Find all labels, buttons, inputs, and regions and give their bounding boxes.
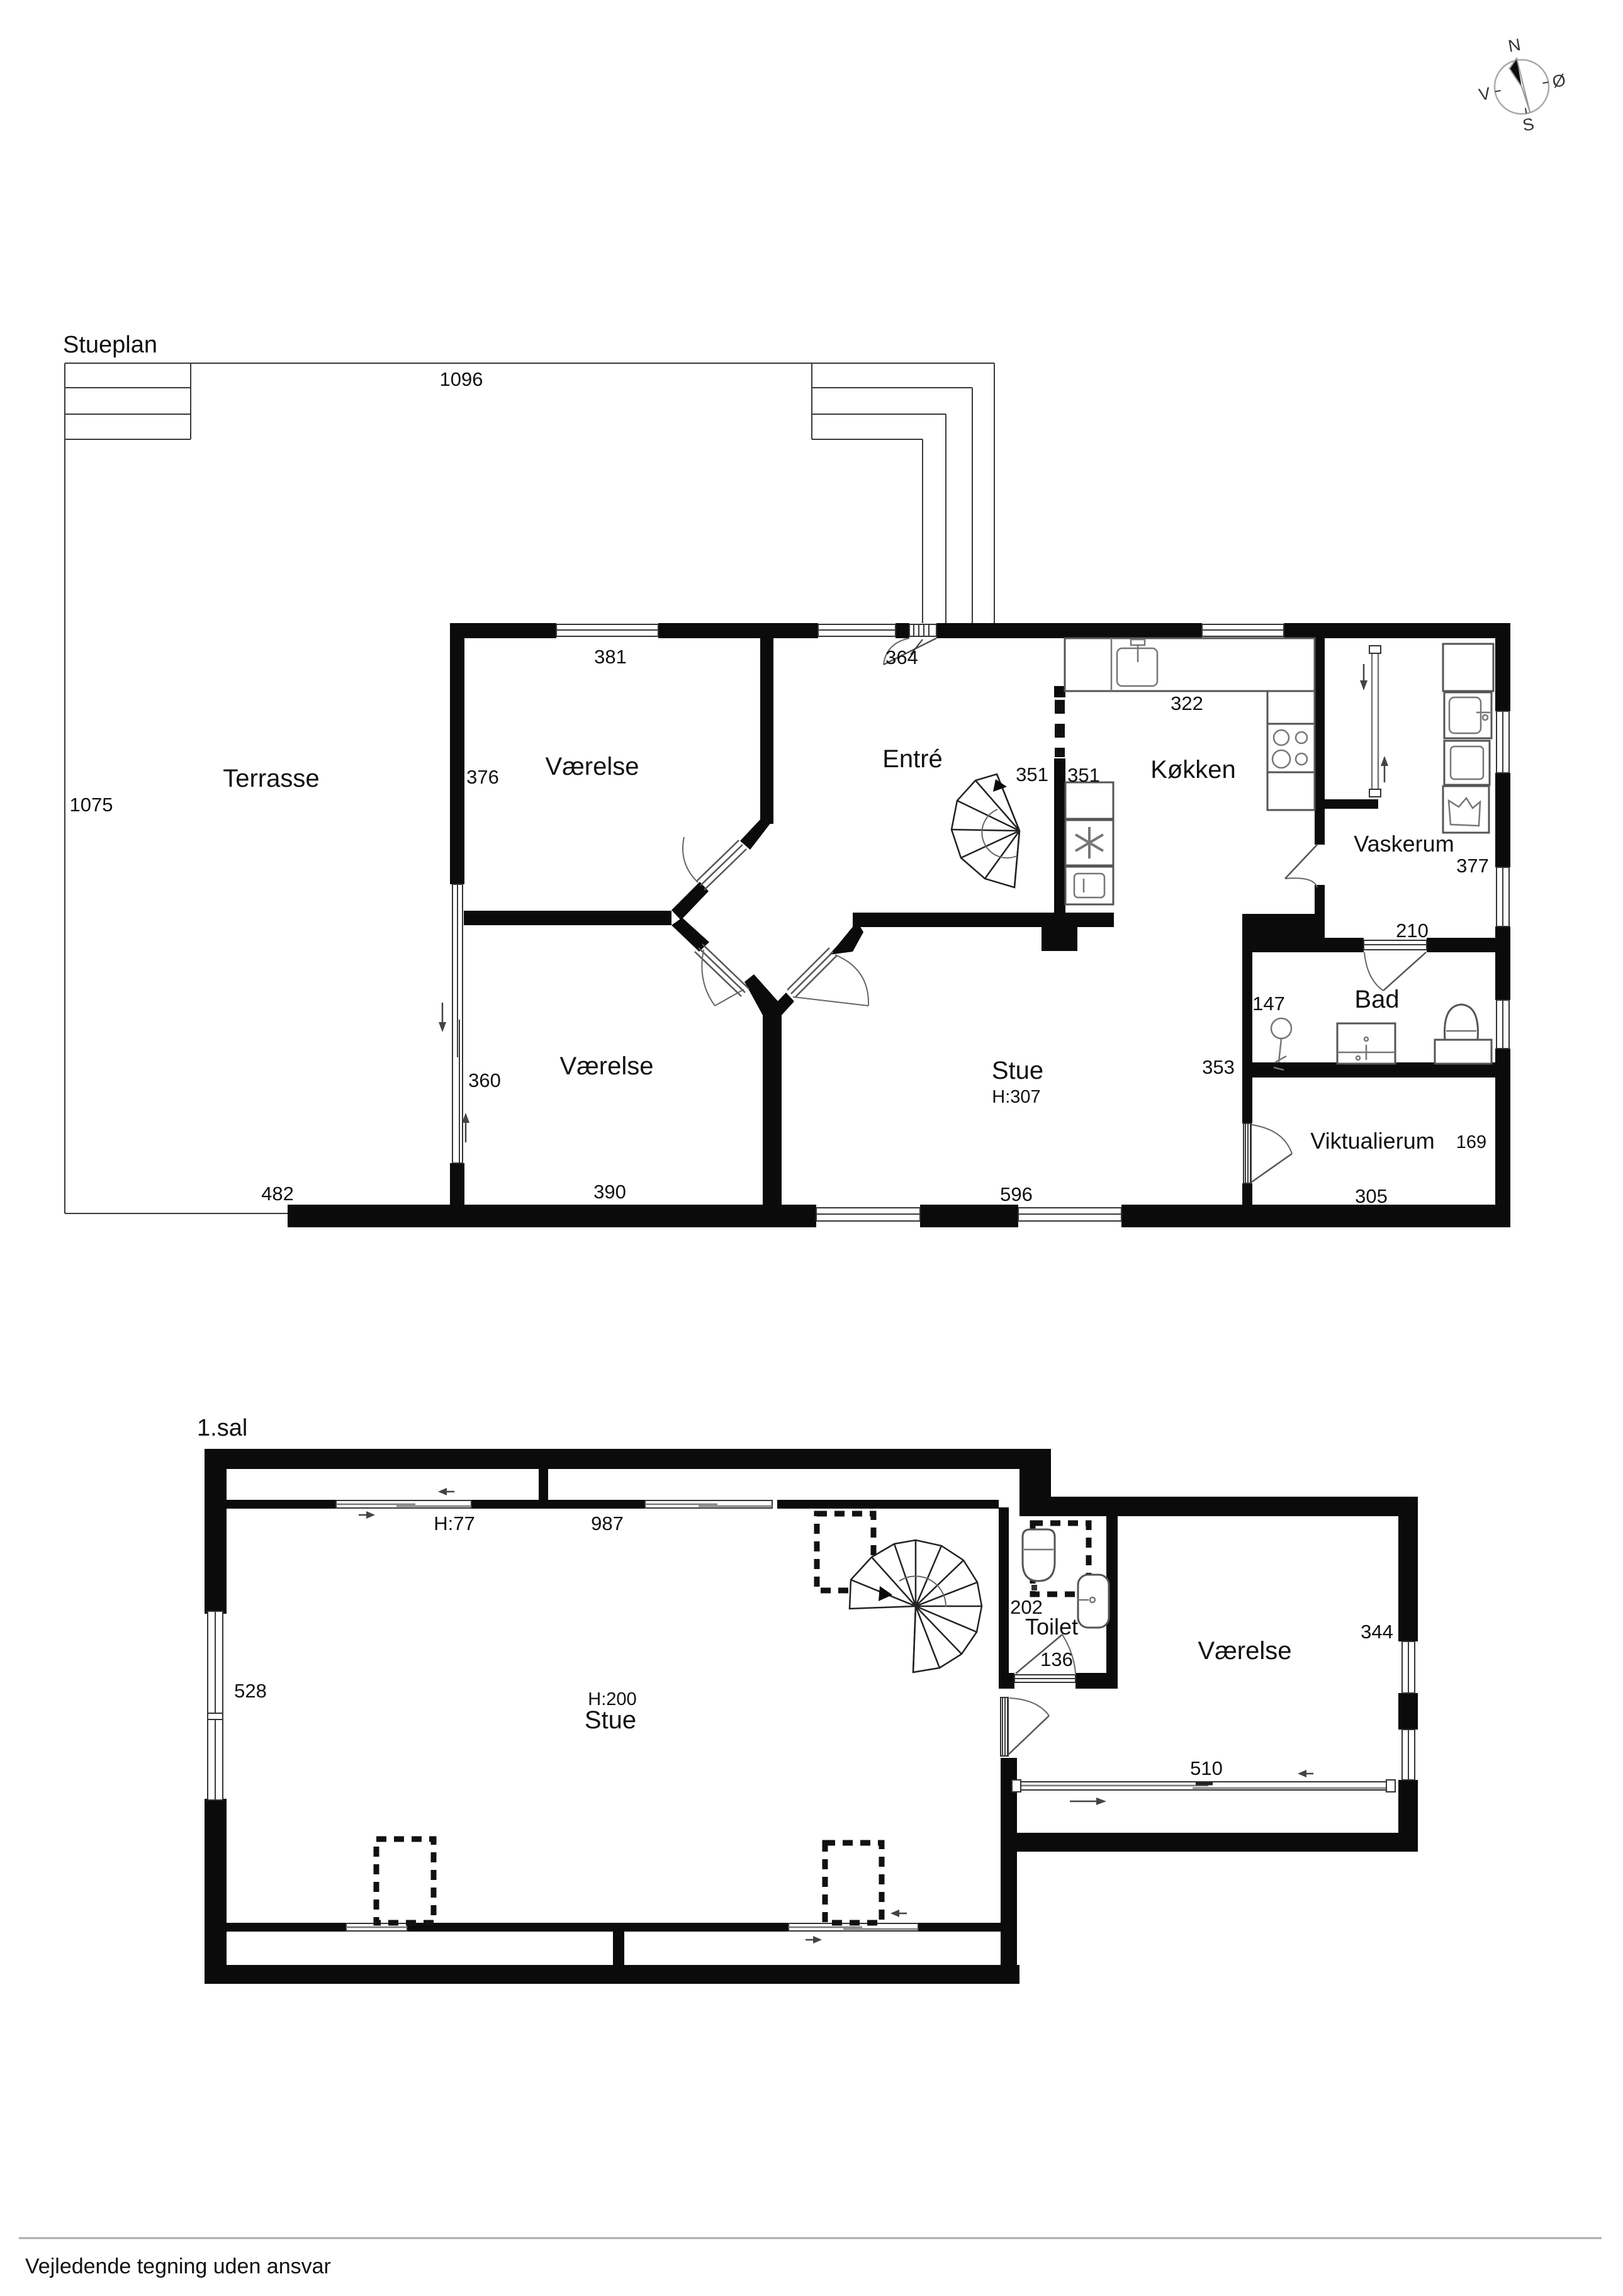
shower-head bbox=[1271, 1018, 1291, 1070]
compass-west-label: V bbox=[1478, 84, 1492, 104]
ff-north-knee-wall bbox=[227, 1469, 999, 1519]
toilet-sink bbox=[1078, 1575, 1109, 1628]
room-height-living-gf: H:307 bbox=[992, 1087, 1040, 1107]
sliding-window bbox=[645, 1500, 772, 1508]
entry-ramp bbox=[812, 363, 994, 623]
kitchen-door bbox=[1285, 845, 1317, 887]
room-label-bedroom-nw: Værelse bbox=[546, 753, 639, 780]
gf-utility-sliding-door bbox=[1360, 646, 1388, 797]
ff-bedroom-door bbox=[1001, 1697, 1049, 1756]
window bbox=[1497, 867, 1509, 926]
oven bbox=[1065, 867, 1113, 904]
dim-toilet-d: 136 bbox=[1040, 1648, 1073, 1670]
dim-hall-c: 353 bbox=[1202, 1056, 1235, 1078]
dim-bedroom-h: 344 bbox=[1361, 1621, 1393, 1643]
toilet-wc-fixture bbox=[1023, 1529, 1055, 1590]
compass-needle-tail bbox=[1508, 58, 1530, 115]
dim-terrace-left: 1075 bbox=[70, 794, 113, 816]
window bbox=[1202, 624, 1284, 636]
room-label-living-gf: Stue bbox=[992, 1057, 1043, 1084]
chimney-box-east bbox=[825, 1843, 882, 1923]
dim-toilet-w: 202 bbox=[1010, 1596, 1043, 1618]
laundry-basket bbox=[1443, 786, 1489, 833]
kitchen-counter bbox=[1065, 638, 1315, 691]
pantry-door bbox=[1244, 1123, 1292, 1183]
washing-machine bbox=[1444, 741, 1490, 785]
dim-hall-a: 351 bbox=[1016, 763, 1048, 785]
gf-hall-doors bbox=[683, 837, 868, 1006]
ground-floor-title: Stueplan bbox=[63, 332, 157, 358]
disclaimer-text: Vejledende tegning uden ansvar bbox=[25, 2254, 331, 2278]
window bbox=[1402, 1730, 1415, 1780]
room-label-living-ff: Stue bbox=[585, 1706, 636, 1734]
window bbox=[1018, 1208, 1121, 1221]
dim-knee-height: H:77 bbox=[434, 1512, 475, 1534]
room-label-pantry: Viktualierum bbox=[1310, 1128, 1434, 1154]
dim-pantry-h: 169 bbox=[1456, 1132, 1486, 1152]
room-label-bedroom-sw: Værelse bbox=[560, 1052, 654, 1080]
window bbox=[1497, 1000, 1509, 1049]
dim-bedroom-s: 510 bbox=[1190, 1757, 1223, 1779]
room-label-utility: Vaskerum bbox=[1354, 831, 1454, 857]
gf-sliding-door-west bbox=[439, 884, 469, 1163]
dim-entry-door: 364 bbox=[885, 646, 918, 668]
kitchen-right-column bbox=[1267, 691, 1315, 810]
dim-bedroom-nw-h: 376 bbox=[466, 766, 499, 788]
freezer bbox=[1065, 820, 1113, 865]
room-label-bath: Bad bbox=[1354, 986, 1399, 1013]
ff-outer-walls bbox=[205, 1449, 1418, 1984]
dim-bedroom-nw-w: 381 bbox=[594, 646, 627, 668]
ff-left-window bbox=[208, 1611, 223, 1800]
dim-bedroom-sw-w: 390 bbox=[593, 1181, 626, 1203]
dim-left-h: 528 bbox=[234, 1680, 267, 1702]
room-label-terrasse: Terrasse bbox=[223, 765, 319, 792]
ground-floor-plan: Stueplan bbox=[63, 332, 1510, 1227]
window bbox=[816, 1208, 920, 1221]
footer: Vejledende tegning uden ansvar bbox=[19, 2238, 1602, 2278]
gf-interior-walls bbox=[464, 637, 1495, 1205]
window bbox=[1497, 711, 1509, 773]
stove-cooktop bbox=[1267, 724, 1315, 772]
dim-pantry-w: 305 bbox=[1355, 1185, 1388, 1207]
dim-living-s: 596 bbox=[1000, 1183, 1033, 1205]
fridge bbox=[1065, 782, 1113, 819]
chimney-box-west bbox=[376, 1839, 434, 1923]
floorplan-page: N Ø S V Stueplan bbox=[0, 0, 1623, 2296]
dim-utility-w: 210 bbox=[1396, 920, 1429, 942]
dim-top-w: 987 bbox=[591, 1512, 624, 1534]
room-label-entre: Entré bbox=[882, 745, 943, 773]
fridge-freezer-column bbox=[1065, 782, 1113, 904]
dim-terrace-s: 482 bbox=[261, 1183, 294, 1205]
spiral-staircase-ff bbox=[850, 1540, 982, 1672]
window bbox=[556, 624, 658, 636]
compass-south-label: S bbox=[1521, 115, 1536, 135]
dim-terrace-top: 1096 bbox=[440, 368, 483, 390]
dim-hall-b: 351 bbox=[1067, 764, 1100, 786]
window bbox=[818, 624, 896, 636]
toilet-fixture bbox=[1435, 1004, 1491, 1064]
sliding-window bbox=[336, 1500, 471, 1508]
terrace-outline bbox=[65, 363, 994, 1213]
room-label-bedroom-ff: Værelse bbox=[1198, 1637, 1292, 1665]
dim-utility-h: 377 bbox=[1456, 855, 1489, 877]
utility-sink bbox=[1444, 692, 1491, 738]
spiral-staircase-gf bbox=[952, 774, 1019, 887]
room-label-kitchen: Køkken bbox=[1150, 756, 1236, 784]
bath-fixtures bbox=[1271, 1004, 1491, 1070]
utility-fixtures bbox=[1443, 644, 1493, 833]
compass-rose: N Ø S V bbox=[1470, 28, 1574, 142]
dim-bedroom-sw-h: 360 bbox=[468, 1069, 501, 1091]
bath-vanity bbox=[1337, 1023, 1395, 1064]
dim-kitchen-w: 322 bbox=[1171, 692, 1203, 714]
utility-cabinet bbox=[1443, 644, 1493, 691]
window bbox=[1402, 1641, 1415, 1693]
first-floor-plan: 1.sal bbox=[197, 1415, 1418, 1984]
compass-north-label: N bbox=[1507, 35, 1522, 56]
bath-door bbox=[1364, 940, 1427, 991]
terrace-steps bbox=[65, 363, 191, 439]
first-floor-title: 1.sal bbox=[197, 1415, 247, 1441]
dim-shower: 147 bbox=[1252, 993, 1285, 1015]
compass-east-label: Ø bbox=[1551, 70, 1567, 91]
floorplan-drawing: N Ø S V Stueplan bbox=[0, 0, 1623, 2296]
